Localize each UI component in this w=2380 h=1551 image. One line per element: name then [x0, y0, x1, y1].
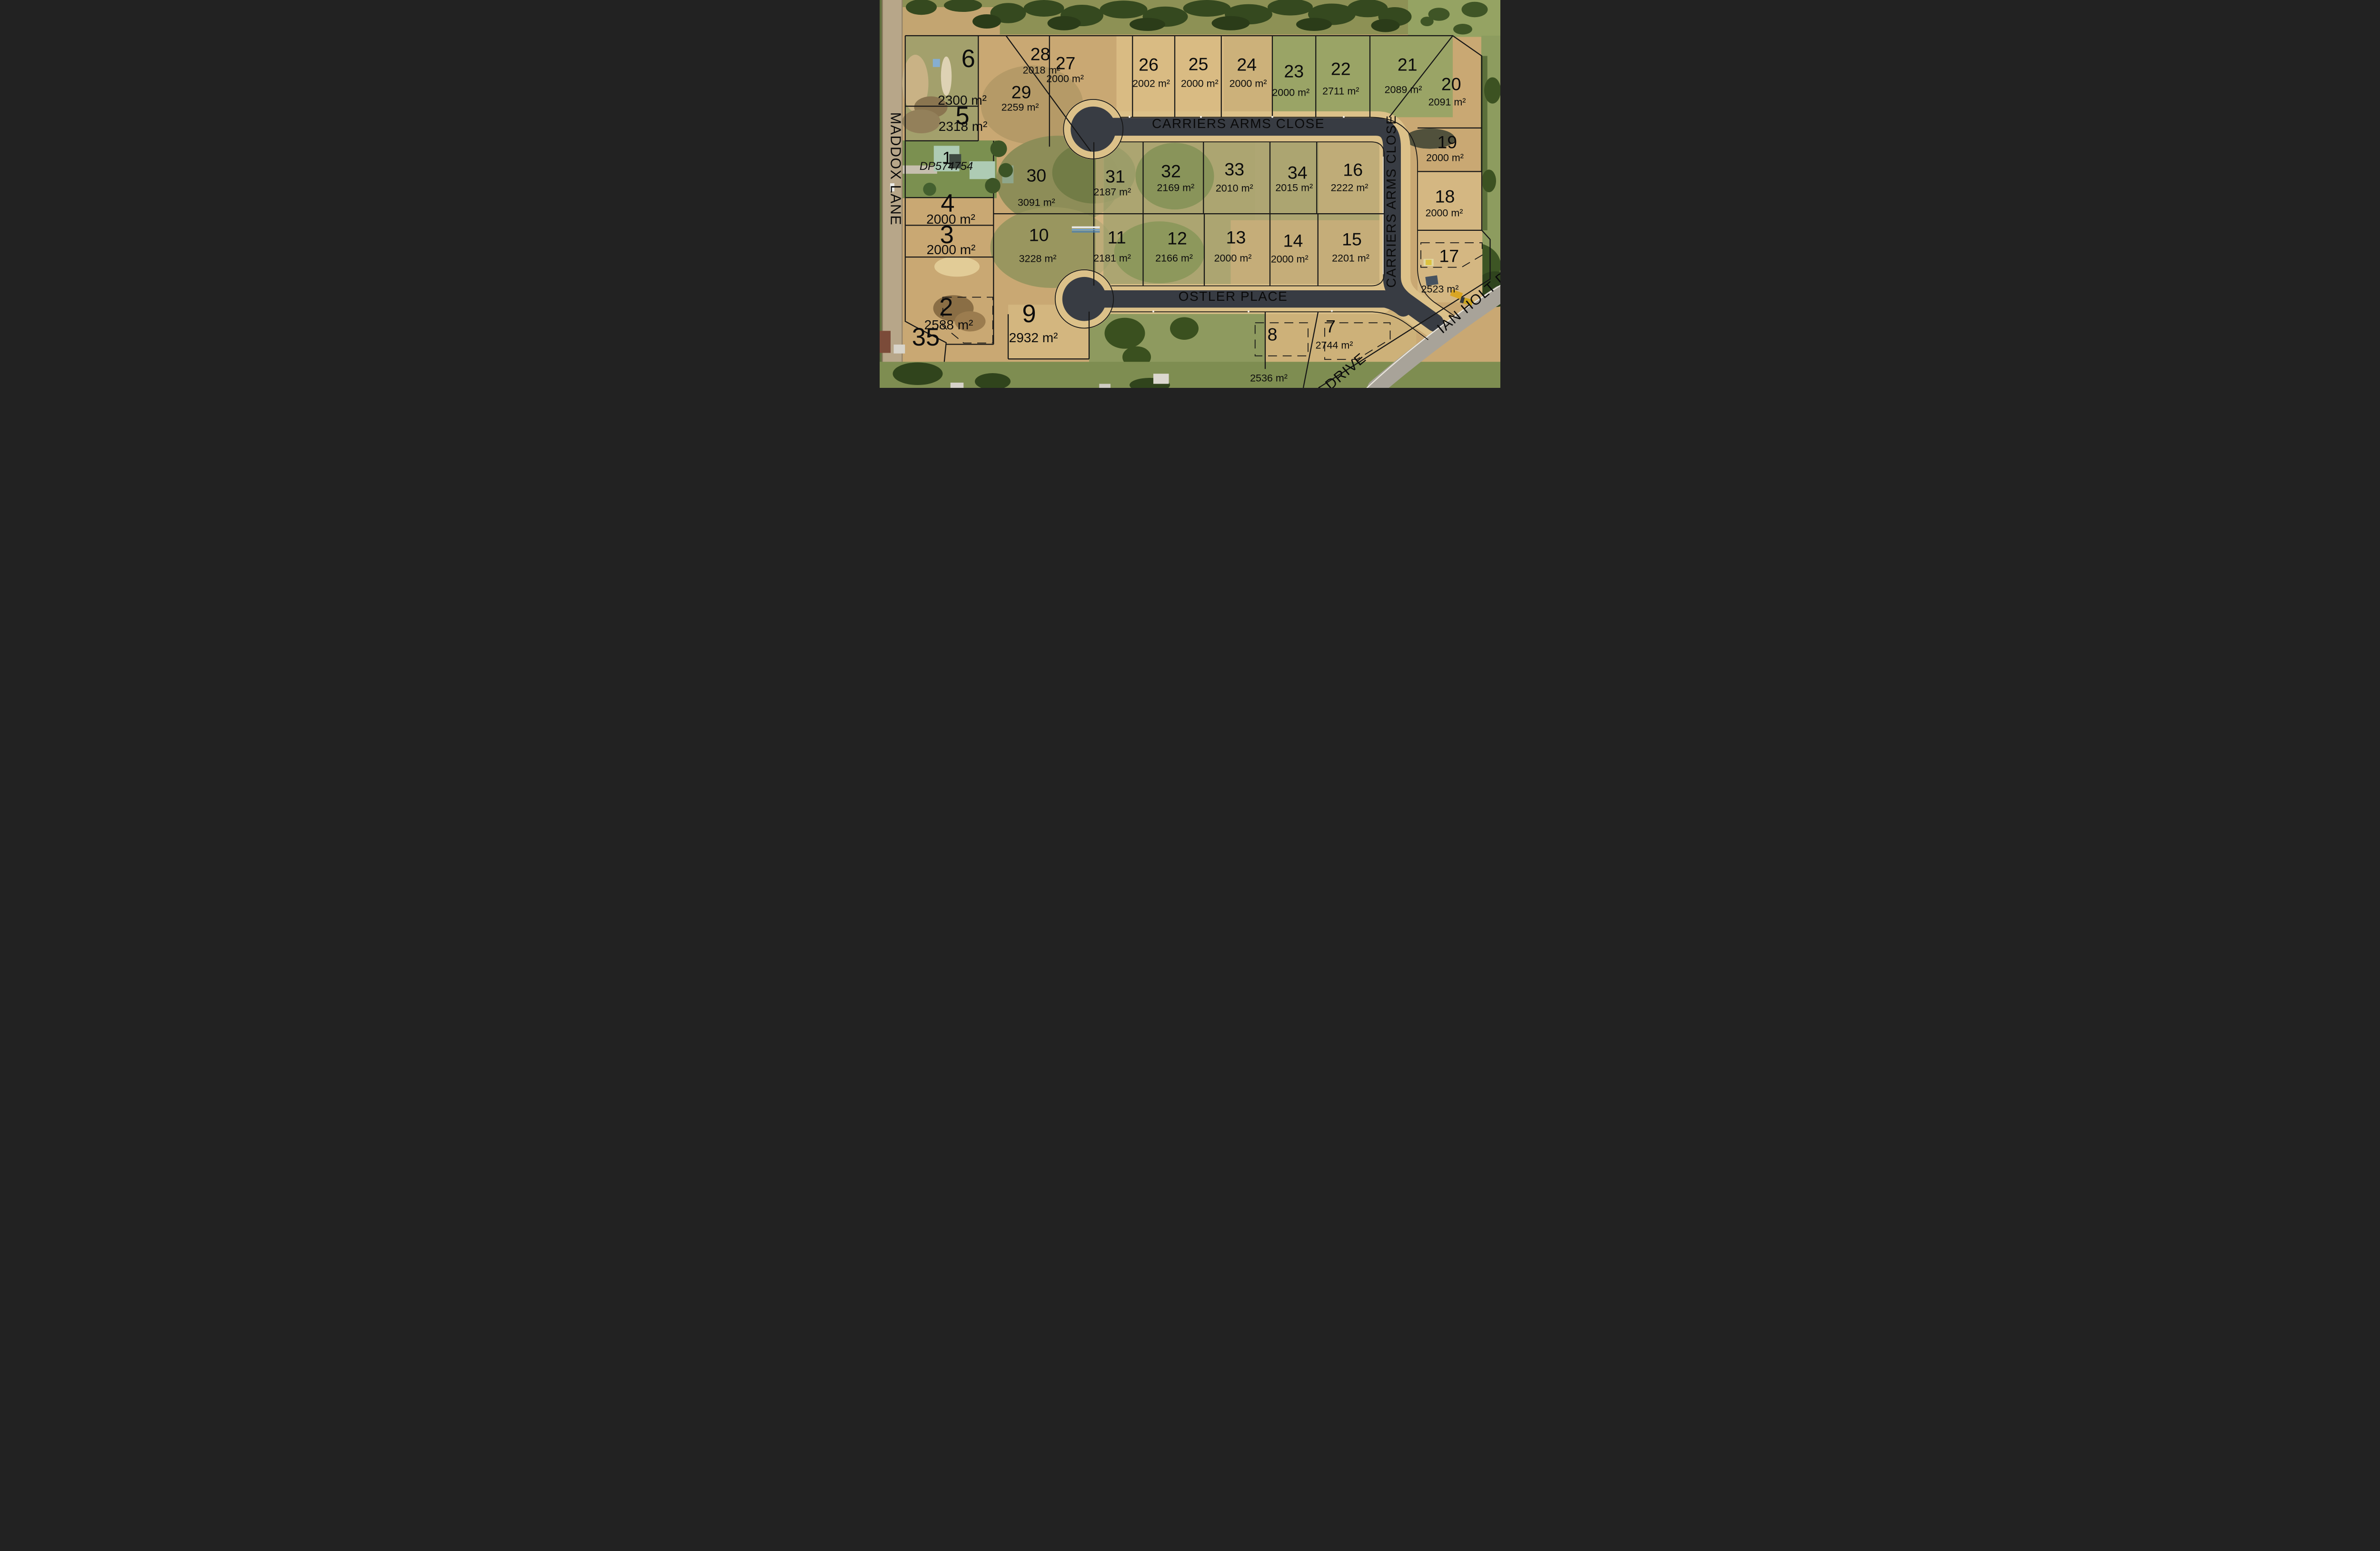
lot-29-area: 2259 m²	[1002, 103, 1039, 113]
lot-4-area: 2000 m²	[926, 213, 975, 226]
street-label-t-drive: T DRIVE	[1312, 350, 1368, 388]
lot-17-area: 2523 m²	[1421, 284, 1459, 295]
lot-12-area: 2166 m²	[1155, 253, 1193, 264]
lot-25-area: 2000 m²	[1181, 79, 1219, 89]
lot-28-number: 28	[1031, 45, 1051, 63]
lot-7-area: 2744 m²	[1316, 341, 1353, 351]
lot-34-number: 34	[1288, 164, 1308, 182]
lot-26-area: 2002 m²	[1132, 79, 1170, 89]
lot-23-number: 23	[1284, 62, 1304, 80]
street-label-ostler-place: OSTLER PLACE	[1179, 290, 1288, 303]
lot-26-number: 26	[1139, 56, 1159, 74]
lot-34-area: 2015 m²	[1275, 183, 1313, 194]
lot-9-number: 9	[1022, 302, 1036, 327]
lot-20-number: 20	[1441, 76, 1461, 94]
label-layer: 1DP57475422588 m²32000 m²42000 m²52318 m…	[880, 0, 1500, 388]
lot-18-number: 18	[1435, 188, 1455, 206]
lot-22-area: 2711 m²	[1322, 86, 1359, 97]
lot-16-area: 2222 m²	[1331, 183, 1368, 194]
lot-31-number: 31	[1105, 168, 1125, 186]
street-label-carriers-arms-close: CARRIERS ARMS CLOSE	[1385, 115, 1398, 287]
lot-15-number: 15	[1342, 231, 1362, 249]
lot-20-area: 2091 m²	[1428, 97, 1466, 108]
lot-30-number: 30	[1026, 167, 1046, 185]
lot-13-area: 2000 m²	[1214, 253, 1252, 264]
lot-29-number: 29	[1011, 83, 1031, 101]
lot-12-number: 12	[1167, 229, 1187, 247]
lot-8-area: 2536 m²	[1250, 374, 1288, 384]
lot-21-area: 2089 m²	[1385, 85, 1422, 95]
lot-7-number: 7	[1326, 318, 1336, 336]
lot-31-area: 2187 m²	[1093, 187, 1131, 198]
lot-19-area: 2000 m²	[1426, 153, 1464, 163]
lot-24-area: 2000 m²	[1230, 79, 1267, 89]
lot-11-area: 2181 m²	[1093, 253, 1131, 264]
lot-14-area: 2000 m²	[1271, 254, 1309, 265]
lot-3-area: 2000 m²	[927, 243, 976, 257]
lot-16-number: 16	[1343, 161, 1363, 179]
lot-17-number: 17	[1439, 247, 1459, 265]
street-label-maddox-lane: MADDOX LANE	[888, 112, 902, 226]
lot-15-area: 2201 m²	[1332, 253, 1369, 264]
lot-21-number: 21	[1398, 56, 1418, 74]
lot-28-area: 2018 m²	[1023, 65, 1061, 76]
street-label-carriers-arms-close: CARRIERS ARMS CLOSE	[1152, 117, 1325, 130]
lot-19-number: 19	[1437, 133, 1457, 151]
lot-14-number: 14	[1283, 232, 1303, 250]
lot-30-area: 3091 m²	[1018, 198, 1055, 208]
lot-9-area: 2932 m²	[1009, 331, 1058, 345]
lot-6-area: 2300 m²	[938, 94, 987, 107]
lot-2-number: 2	[939, 295, 953, 320]
lot-23-area: 2000 m²	[1272, 88, 1309, 99]
street-label-ian-holt-dr: IAN HOLT DR	[1435, 261, 1500, 336]
lot-32-area: 2169 m²	[1157, 183, 1194, 194]
lot-10-number: 10	[1029, 227, 1049, 245]
lot-1-area: DP574754	[920, 161, 973, 172]
lot-25-number: 25	[1189, 55, 1209, 73]
lot-33-number: 33	[1224, 160, 1244, 178]
lot-32-number: 32	[1161, 162, 1181, 180]
lot-22-number: 22	[1331, 60, 1351, 78]
lot-5-area: 2318 m²	[939, 120, 988, 133]
lot-18-area: 2000 m²	[1426, 208, 1463, 219]
lot-33-area: 2010 m²	[1216, 183, 1253, 194]
lot-35-number: 35	[912, 325, 940, 350]
lot-13-number: 13	[1226, 228, 1246, 247]
lot-6-number: 6	[962, 47, 975, 72]
lot-11-number: 11	[1108, 228, 1126, 247]
lot-8-number: 8	[1268, 326, 1278, 344]
subdivision-map: 1DP57475422588 m²32000 m²42000 m²52318 m…	[880, 0, 1500, 388]
lot-24-number: 24	[1237, 56, 1257, 74]
lot-10-area: 3228 m²	[1019, 254, 1057, 265]
